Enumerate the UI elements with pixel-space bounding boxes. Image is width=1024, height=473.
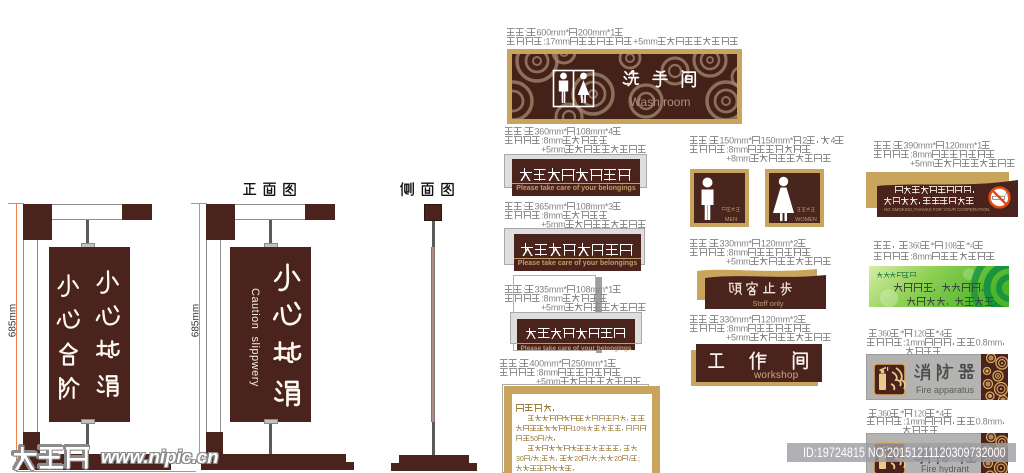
svg-text:WOMEN: WOMEN (795, 217, 817, 223)
svg-text:MEN: MEN (725, 217, 737, 223)
